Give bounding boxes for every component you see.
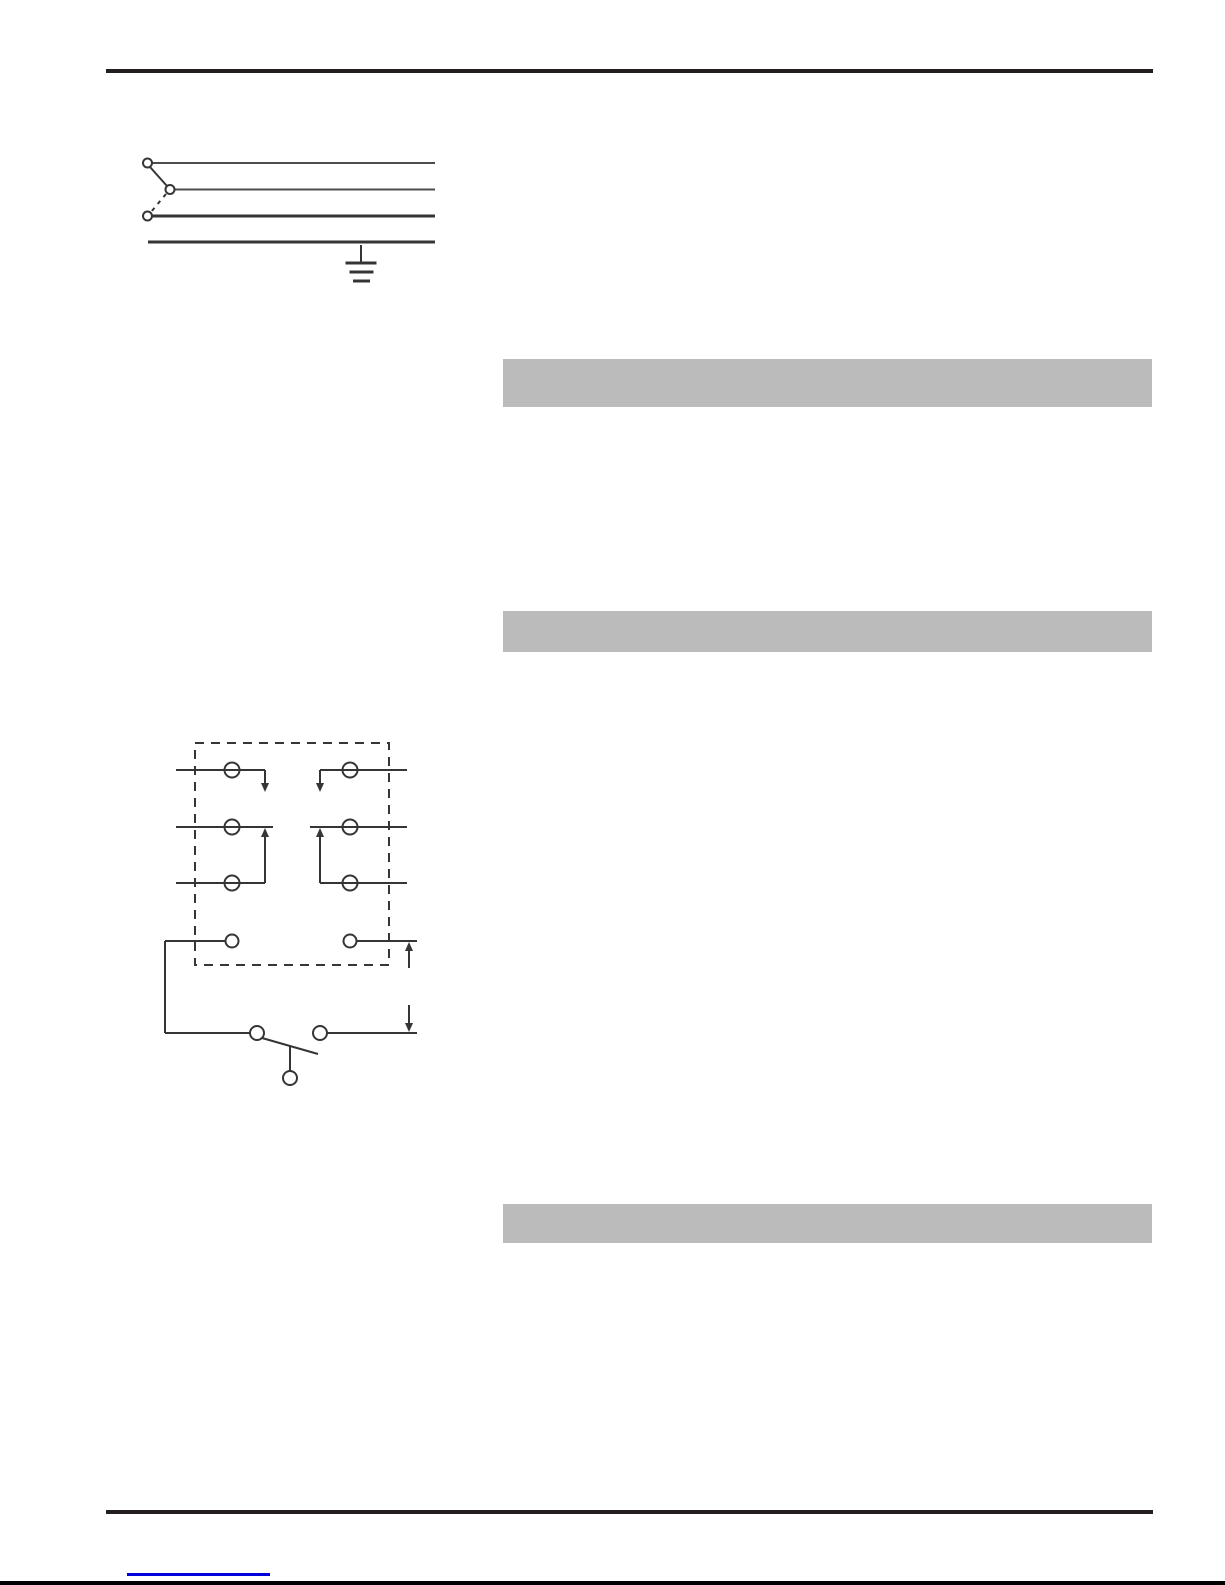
terminal-circle xyxy=(283,1071,297,1085)
arrow-down-icon xyxy=(261,770,269,792)
footer-link[interactable] xyxy=(127,1573,270,1576)
switch-blade-alternate xyxy=(151,194,166,212)
footer-rule xyxy=(106,1510,1153,1514)
document-page xyxy=(0,0,1225,1585)
terminal-circle xyxy=(313,1026,327,1040)
relay-terminal-diagram xyxy=(140,715,440,1095)
terminal-circle xyxy=(250,1026,264,1040)
terminal-circle xyxy=(143,159,152,168)
switch-blade xyxy=(150,167,167,186)
terminal-circle xyxy=(226,935,239,948)
arrow-up-icon xyxy=(316,828,324,883)
highlight-bar-2 xyxy=(503,611,1152,652)
arrow-up-icon xyxy=(405,942,413,968)
highlight-bar-1 xyxy=(503,359,1152,407)
terminal-circle xyxy=(344,935,357,948)
highlight-bar-3 xyxy=(503,1204,1152,1243)
dashed-enclosure xyxy=(195,743,389,965)
selector-switch-icon xyxy=(165,1026,417,1085)
page-bottom-edge xyxy=(0,1581,1225,1585)
terminal-circle xyxy=(143,212,152,221)
arrow-up-icon xyxy=(261,828,269,883)
terminal-circle xyxy=(166,185,175,194)
earth-ground-icon xyxy=(346,245,377,281)
header-rule xyxy=(106,69,1153,73)
arrow-down-icon xyxy=(316,770,324,792)
arrow-down-icon xyxy=(405,1005,413,1032)
power-switch-diagram xyxy=(100,130,445,290)
